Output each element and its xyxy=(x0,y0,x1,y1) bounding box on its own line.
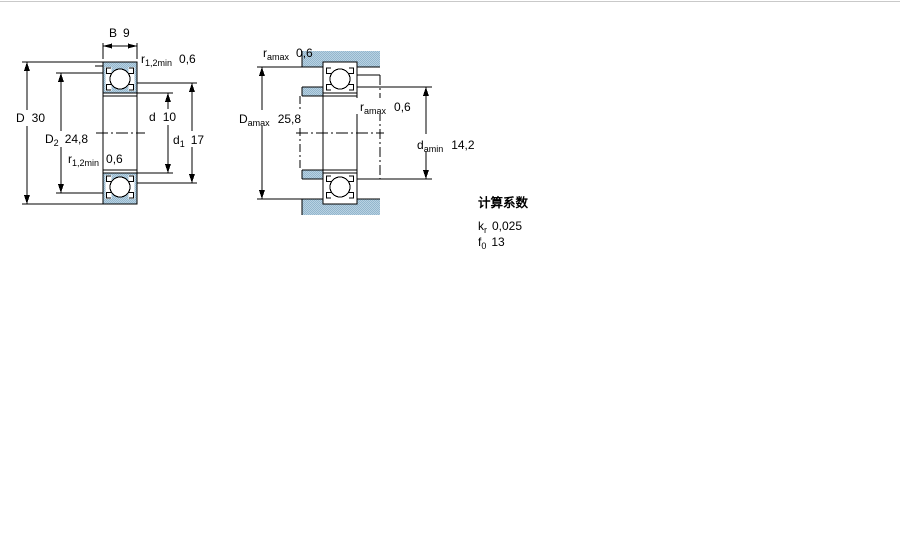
cross-section-figure: B9 r1,2min0,6 D30 D224,8 r1,2min0,6 d10 … xyxy=(13,26,208,204)
dim-housing-abutment-Da xyxy=(257,67,302,199)
factor-kr: kr0,025 xyxy=(478,219,522,235)
ball-top xyxy=(110,69,130,89)
mounting-figure: ramax0,6 Damax25,8 ramax0,6 damin14,2 xyxy=(235,46,478,215)
ball-top xyxy=(330,69,350,89)
ball-bottom xyxy=(330,177,350,197)
bearing-drawing-page: B9 r1,2min0,6 D30 D224,8 r1,2min0,6 d10 … xyxy=(0,0,900,560)
bearing-drawing-canvas: B9 r1,2min0,6 D30 D224,8 r1,2min0,6 d10 … xyxy=(0,0,900,560)
calculation-factors-title: 计算系数 xyxy=(478,195,529,210)
ball-bottom xyxy=(110,177,130,197)
calculation-factors: 计算系数 kr0,025 f013 xyxy=(478,195,529,251)
label-bore-diameter-d: d10 xyxy=(149,110,176,124)
label-width-B: B9 xyxy=(109,26,130,40)
label-chamfer-mid: r1,2min0,6 xyxy=(68,152,123,168)
label-chamfer-top: r1,2min0,6 xyxy=(141,52,196,68)
factor-f0: f013 xyxy=(478,235,505,251)
dim-width-B xyxy=(103,43,137,59)
label-recess-diameter-D2: D224,8 xyxy=(45,132,88,148)
label-housing-fillet: ramax0,6 xyxy=(263,46,313,62)
